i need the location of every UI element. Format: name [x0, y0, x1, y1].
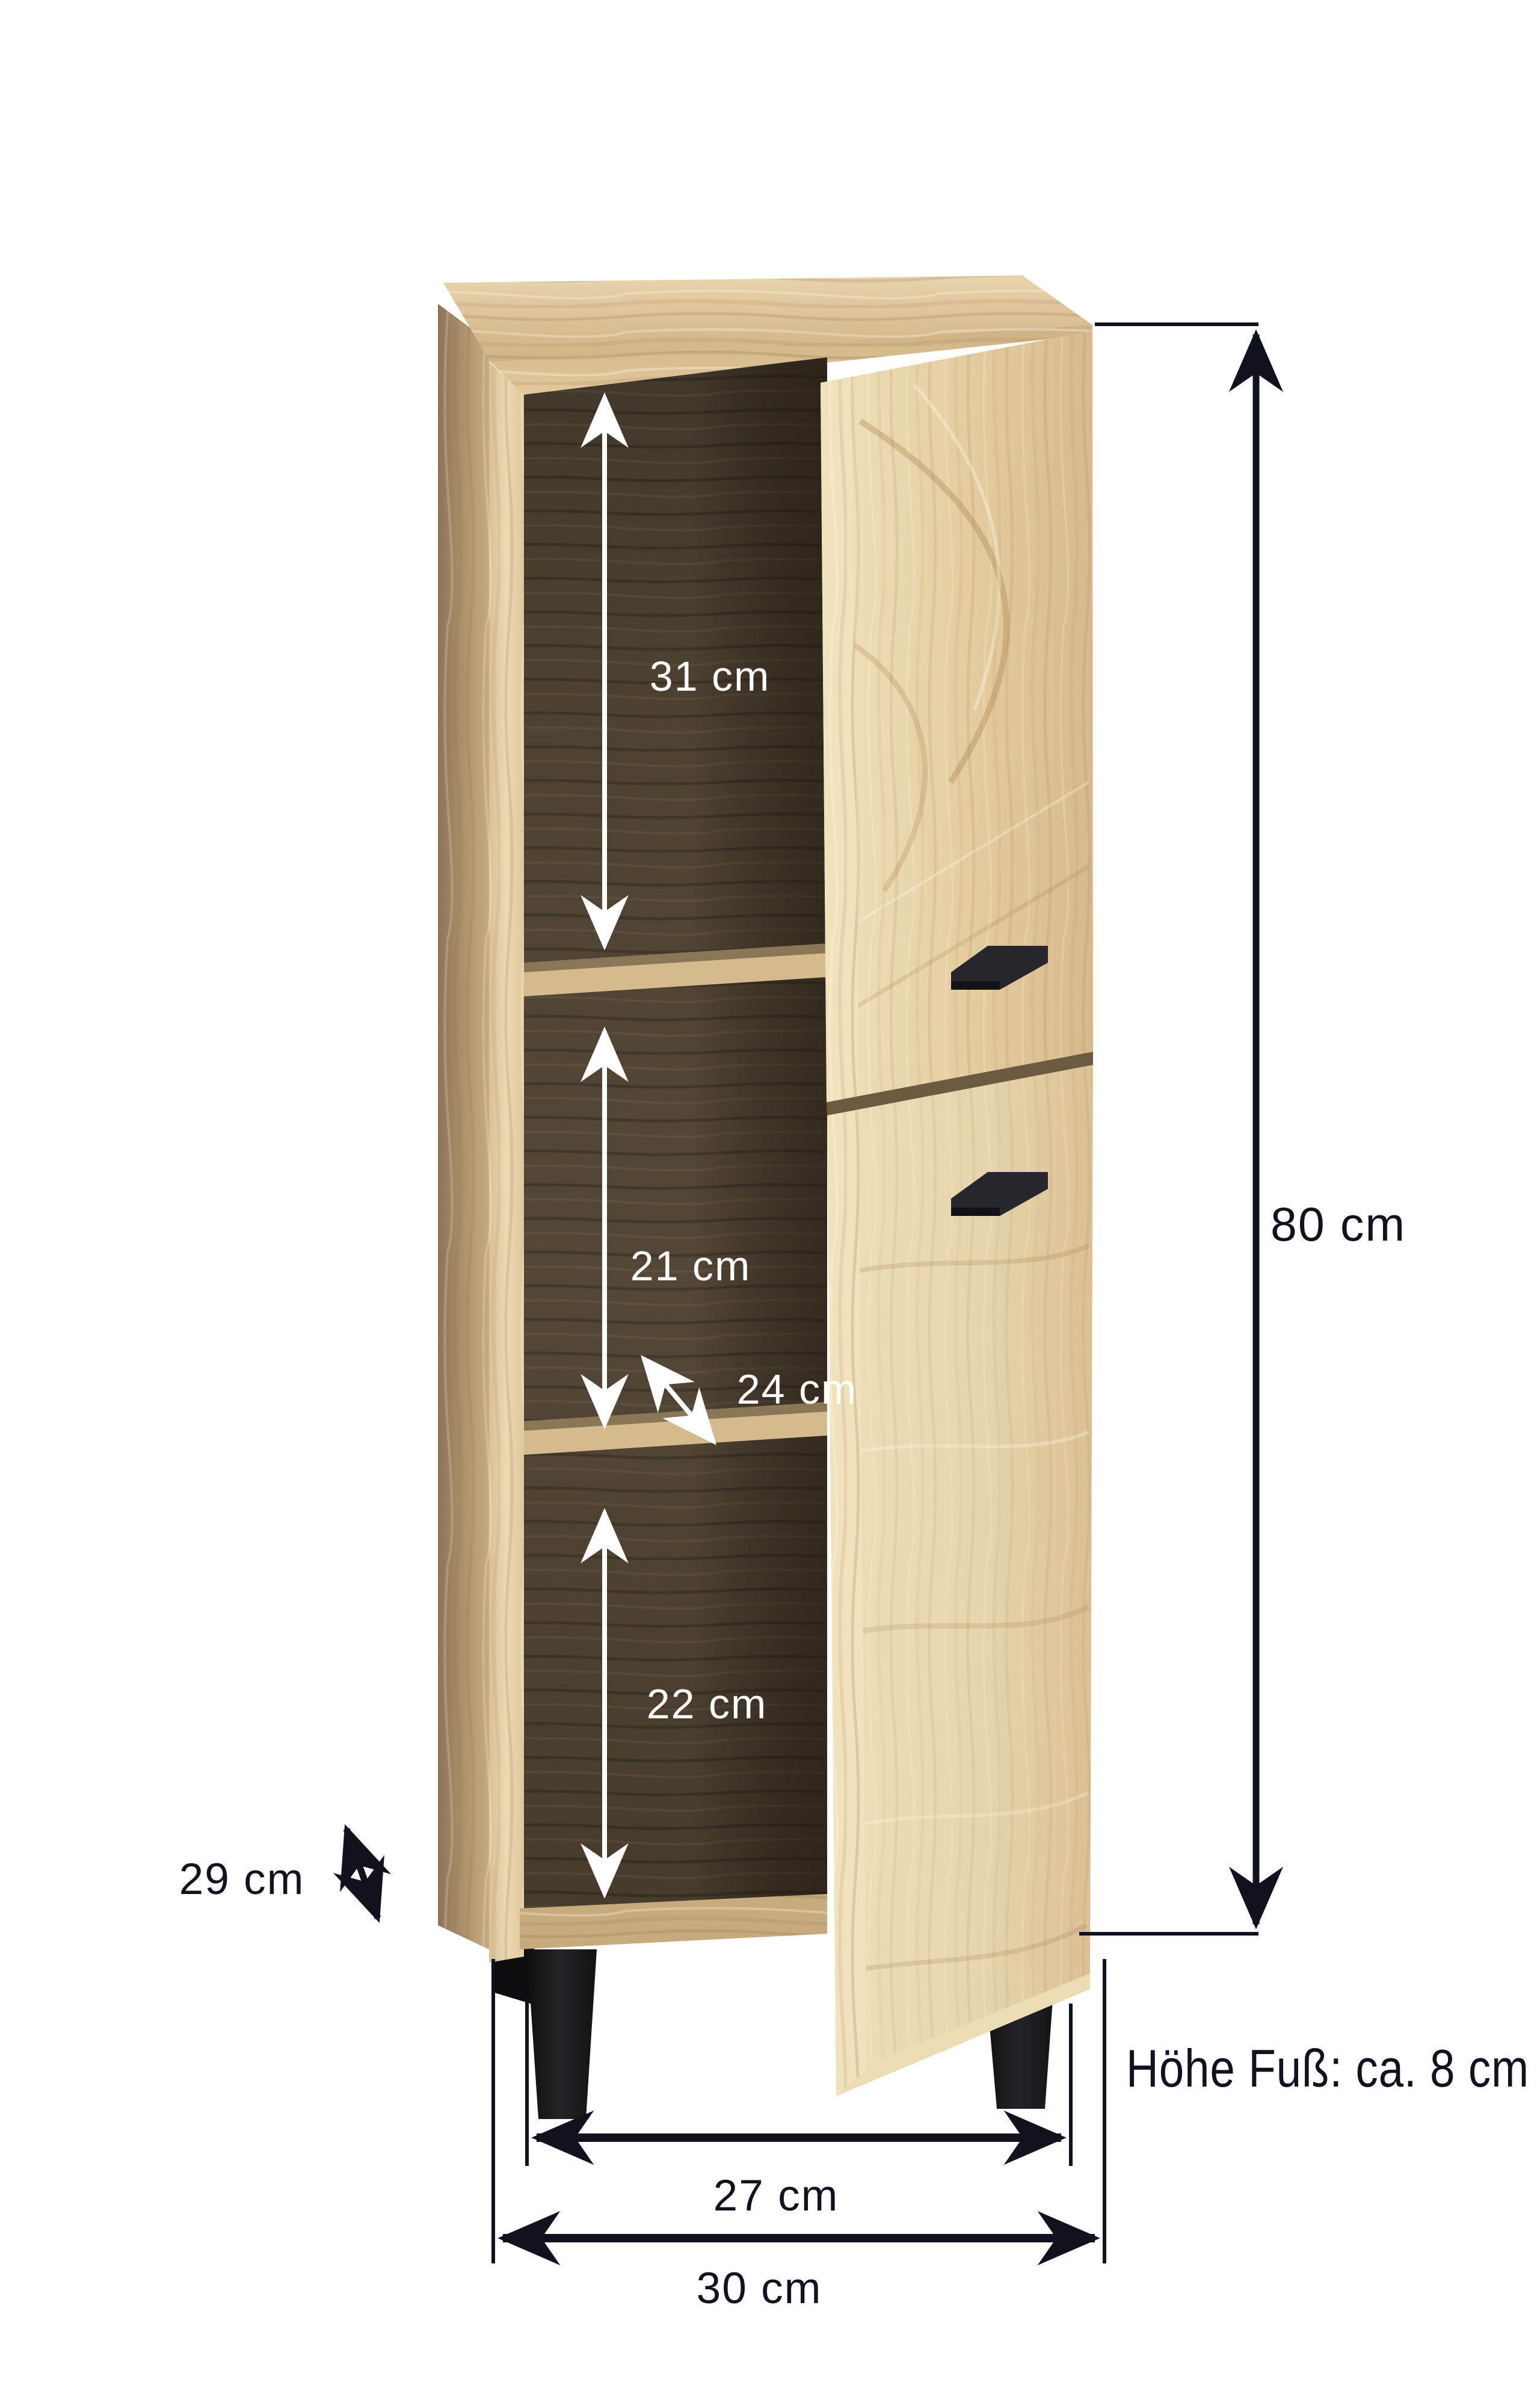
dim-label-30cm: 30 cm: [697, 2264, 822, 2313]
dim-label-27cm: 27 cm: [713, 2171, 839, 2220]
cabinet-diagram-svg: 31 cm 21 cm 24 cm 22 cm 80 cm 29 cm 27 c…: [0, 0, 1540, 2397]
foot-height-note: Höhe Fuß: ca. 8 cm: [1126, 2038, 1529, 2098]
door-lower-handle-face: [951, 1208, 1000, 1216]
dim-label-22cm: 22 cm: [647, 1680, 768, 1727]
dim-label-80cm: 80 cm: [1270, 1197, 1406, 1251]
dim-label-29cm: 29 cm: [179, 1855, 305, 1904]
cabinet-interior-shadow: [692, 357, 827, 1901]
dim-label-31cm: 31 cm: [650, 653, 771, 700]
cabinet-foot-front-left: [527, 1949, 597, 2119]
dim-label-21cm: 21 cm: [630, 1242, 751, 1289]
product-dimension-diagram: 31 cm 21 cm 24 cm 22 cm 80 cm 29 cm 27 c…: [0, 0, 1540, 2397]
cabinet-front-stile-grain: [489, 362, 524, 1963]
door-upper-handle-face: [951, 981, 1000, 990]
dim-label-24cm: 24 cm: [737, 1366, 858, 1413]
dim-arrow-29cm: [346, 1829, 378, 1918]
door-lower-grain: [827, 1065, 1093, 2096]
cabinet-illustration: [438, 276, 1093, 2119]
cabinet-side-panel-grain: [438, 304, 489, 1949]
